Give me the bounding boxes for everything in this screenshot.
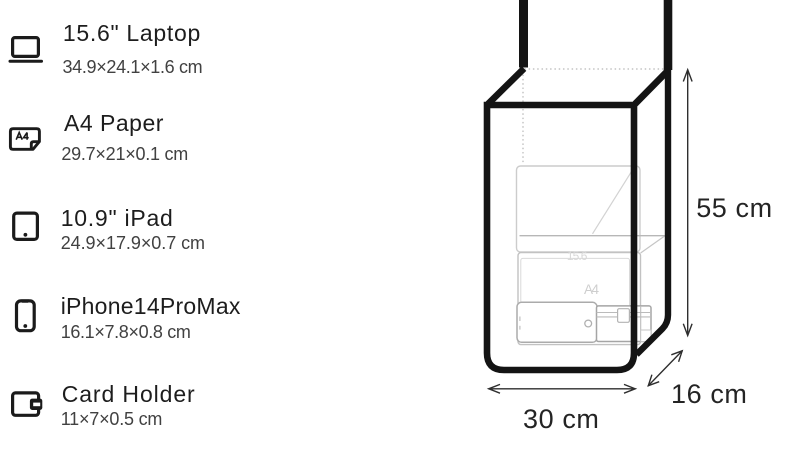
svg-text:A4: A4 xyxy=(584,282,599,297)
svg-text:15.6: 15.6 xyxy=(567,249,588,263)
